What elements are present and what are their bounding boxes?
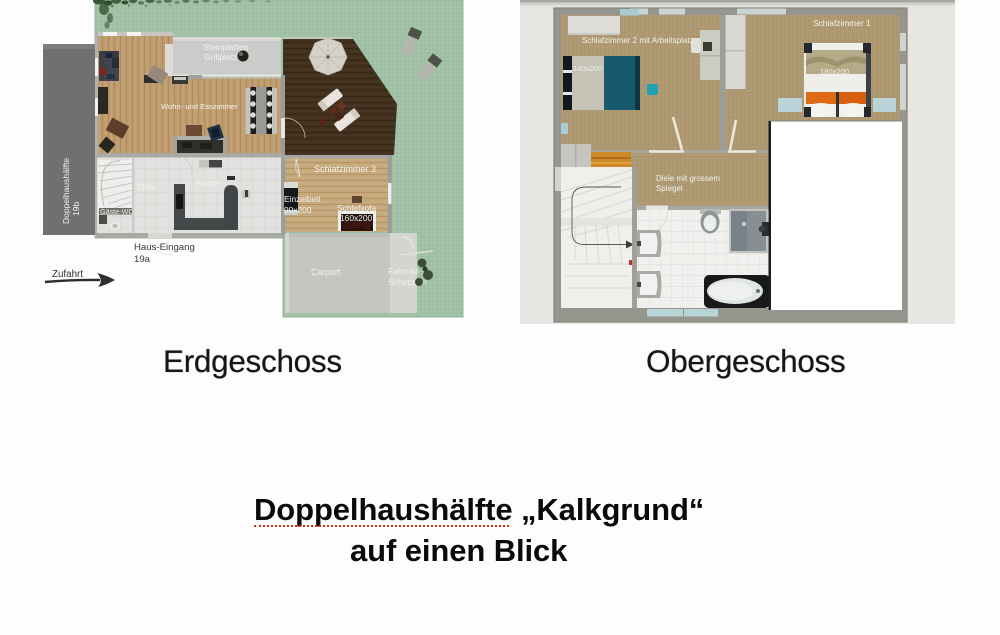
svg-text:Wohn- und Esszimmer: Wohn- und Esszimmer bbox=[161, 102, 238, 111]
svg-text:Einzelbett: Einzelbett bbox=[284, 194, 321, 204]
svg-text:19a: 19a bbox=[134, 254, 151, 265]
svg-text:Haus-Eingang: Haus-Eingang bbox=[134, 242, 195, 253]
svg-text:Fahrrad-: Fahrrad- bbox=[388, 266, 421, 276]
svg-text:Carport: Carport bbox=[311, 267, 341, 277]
svg-text:Steinplatten: Steinplatten bbox=[203, 42, 249, 52]
svg-text:Grillplatz: Grillplatz bbox=[204, 52, 237, 62]
svg-text:Diele: Diele bbox=[137, 183, 156, 192]
svg-text:Spiegel: Spiegel bbox=[656, 184, 683, 193]
svg-text:Diele mit grossem: Diele mit grossem bbox=[656, 174, 720, 183]
svg-text:Schlafsofa: Schlafsofa bbox=[337, 203, 376, 213]
svg-text:Doppelhaushälfte: Doppelhaushälfte bbox=[61, 158, 71, 224]
svg-text:19b: 19b bbox=[71, 202, 81, 216]
svg-text:Küche: Küche bbox=[196, 179, 220, 188]
svg-text:Schlafzimmer 2 mit Arbeitsplat: Schlafzimmer 2 mit Arbeitsplatz bbox=[582, 36, 694, 45]
svg-text:Vollbad mit: Vollbad mit bbox=[666, 245, 706, 254]
svg-text:Fussbodenheizung: Fussbodenheizung bbox=[666, 257, 734, 266]
svg-text:160x200: 160x200 bbox=[340, 213, 372, 223]
svg-text:Zufahrt: Zufahrt bbox=[52, 269, 83, 280]
svg-text:Schlafzimmer 3: Schlafzimmer 3 bbox=[314, 164, 376, 174]
svg-text:Schlafzimmer 1: Schlafzimmer 1 bbox=[813, 18, 871, 28]
svg-text:180x200: 180x200 bbox=[820, 67, 849, 76]
svg-text:90x200: 90x200 bbox=[284, 205, 312, 215]
svg-text:140x200: 140x200 bbox=[573, 64, 602, 73]
